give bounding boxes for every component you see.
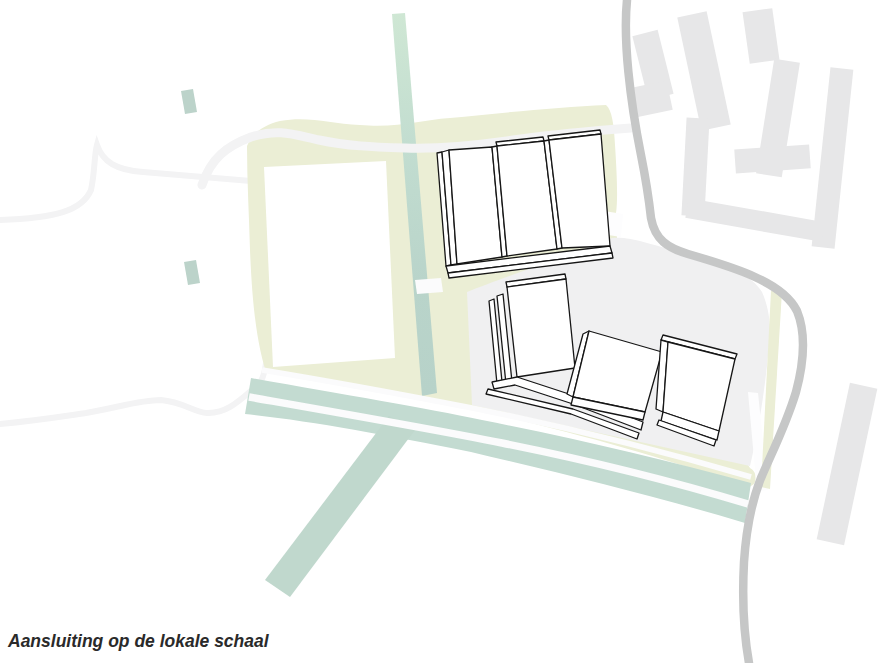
strip-road-gap	[415, 278, 443, 294]
faint-roads	[0, 145, 266, 424]
context-building	[743, 8, 780, 64]
site-plan-figure	[0, 0, 892, 663]
context-building	[817, 383, 878, 545]
building-cluster-north	[437, 130, 613, 278]
corridor-branch-southwest	[265, 416, 415, 597]
context-building	[677, 11, 730, 131]
building-tower	[507, 279, 575, 377]
context-building	[734, 144, 810, 173]
teal-fragments	[181, 89, 200, 285]
site-plan-page: Aansluiting op de lokale schaal	[0, 0, 892, 663]
water-strip-fragment	[181, 89, 197, 114]
faint-road-southwest	[0, 363, 266, 424]
figure-caption: Aansluiting op de lokale schaal	[8, 631, 269, 652]
water-strip-fragment	[184, 260, 200, 285]
context-building	[685, 198, 824, 242]
open-field	[264, 161, 395, 367]
